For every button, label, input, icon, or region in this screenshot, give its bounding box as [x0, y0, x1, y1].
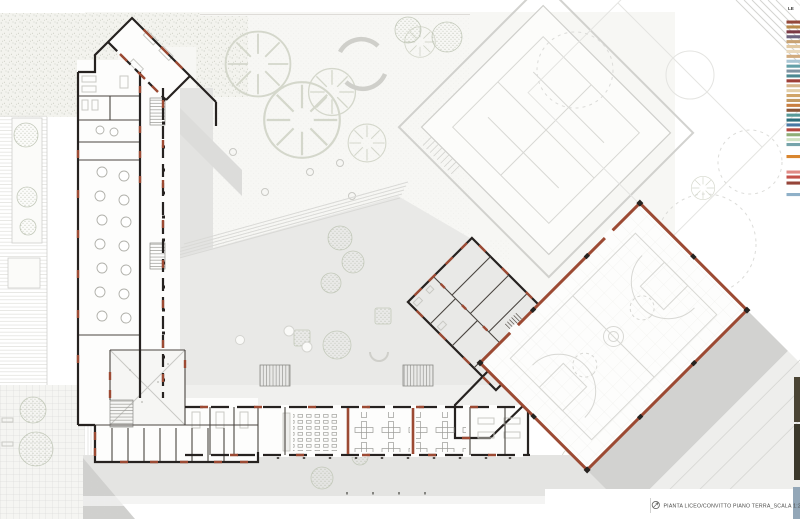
legend-chip	[787, 193, 800, 196]
legend-chip	[787, 138, 800, 141]
legend-chip	[787, 128, 800, 131]
legend-chip	[787, 25, 800, 28]
photo-sliver-bottom	[794, 424, 800, 480]
legend-chip	[787, 155, 800, 158]
legend-chip	[787, 70, 800, 73]
legend-chip	[787, 176, 800, 179]
edge-photo-strip	[793, 377, 800, 519]
auditorium-seats	[293, 413, 338, 451]
legend-chip	[787, 109, 800, 112]
legend-chip	[787, 104, 800, 107]
legend-chip	[787, 35, 800, 38]
legend-chip	[787, 79, 800, 82]
legend-chip	[787, 84, 800, 87]
legend-chip	[787, 94, 800, 97]
legend-chip	[787, 30, 800, 33]
legend-chip	[787, 171, 800, 174]
legend-chip	[787, 55, 800, 58]
legend-chip	[787, 133, 800, 136]
caption-text: PIANTA LICEO/CONVITTO PIANO TERRA_SCALA …	[664, 503, 800, 509]
legend-chip	[787, 89, 800, 92]
photo-sliver-top	[794, 377, 800, 422]
legend-title: LE	[788, 6, 794, 11]
legend-chip	[787, 99, 800, 102]
legend-chip	[787, 119, 800, 122]
legend-chip	[787, 60, 800, 63]
legend-chip	[787, 45, 800, 48]
legend-chip	[787, 182, 800, 185]
architectural-drawing: LE PIANTA LICEO/CONVITTO PIANO TERRA_SCA…	[0, 0, 800, 519]
classroom-desks	[352, 412, 410, 452]
legend-chip	[787, 50, 800, 53]
legend-chip	[787, 65, 800, 68]
legend-chip	[787, 21, 800, 24]
legend-chip	[787, 74, 800, 77]
site-plan-svg: LE PIANTA LICEO/CONVITTO PIANO TERRA_SCA…	[0, 0, 800, 519]
legend-chip	[787, 114, 800, 117]
classroom-desks-2	[416, 412, 466, 452]
legend-chip	[787, 143, 800, 146]
legend-chip	[787, 123, 800, 126]
legend-chip	[787, 40, 800, 43]
